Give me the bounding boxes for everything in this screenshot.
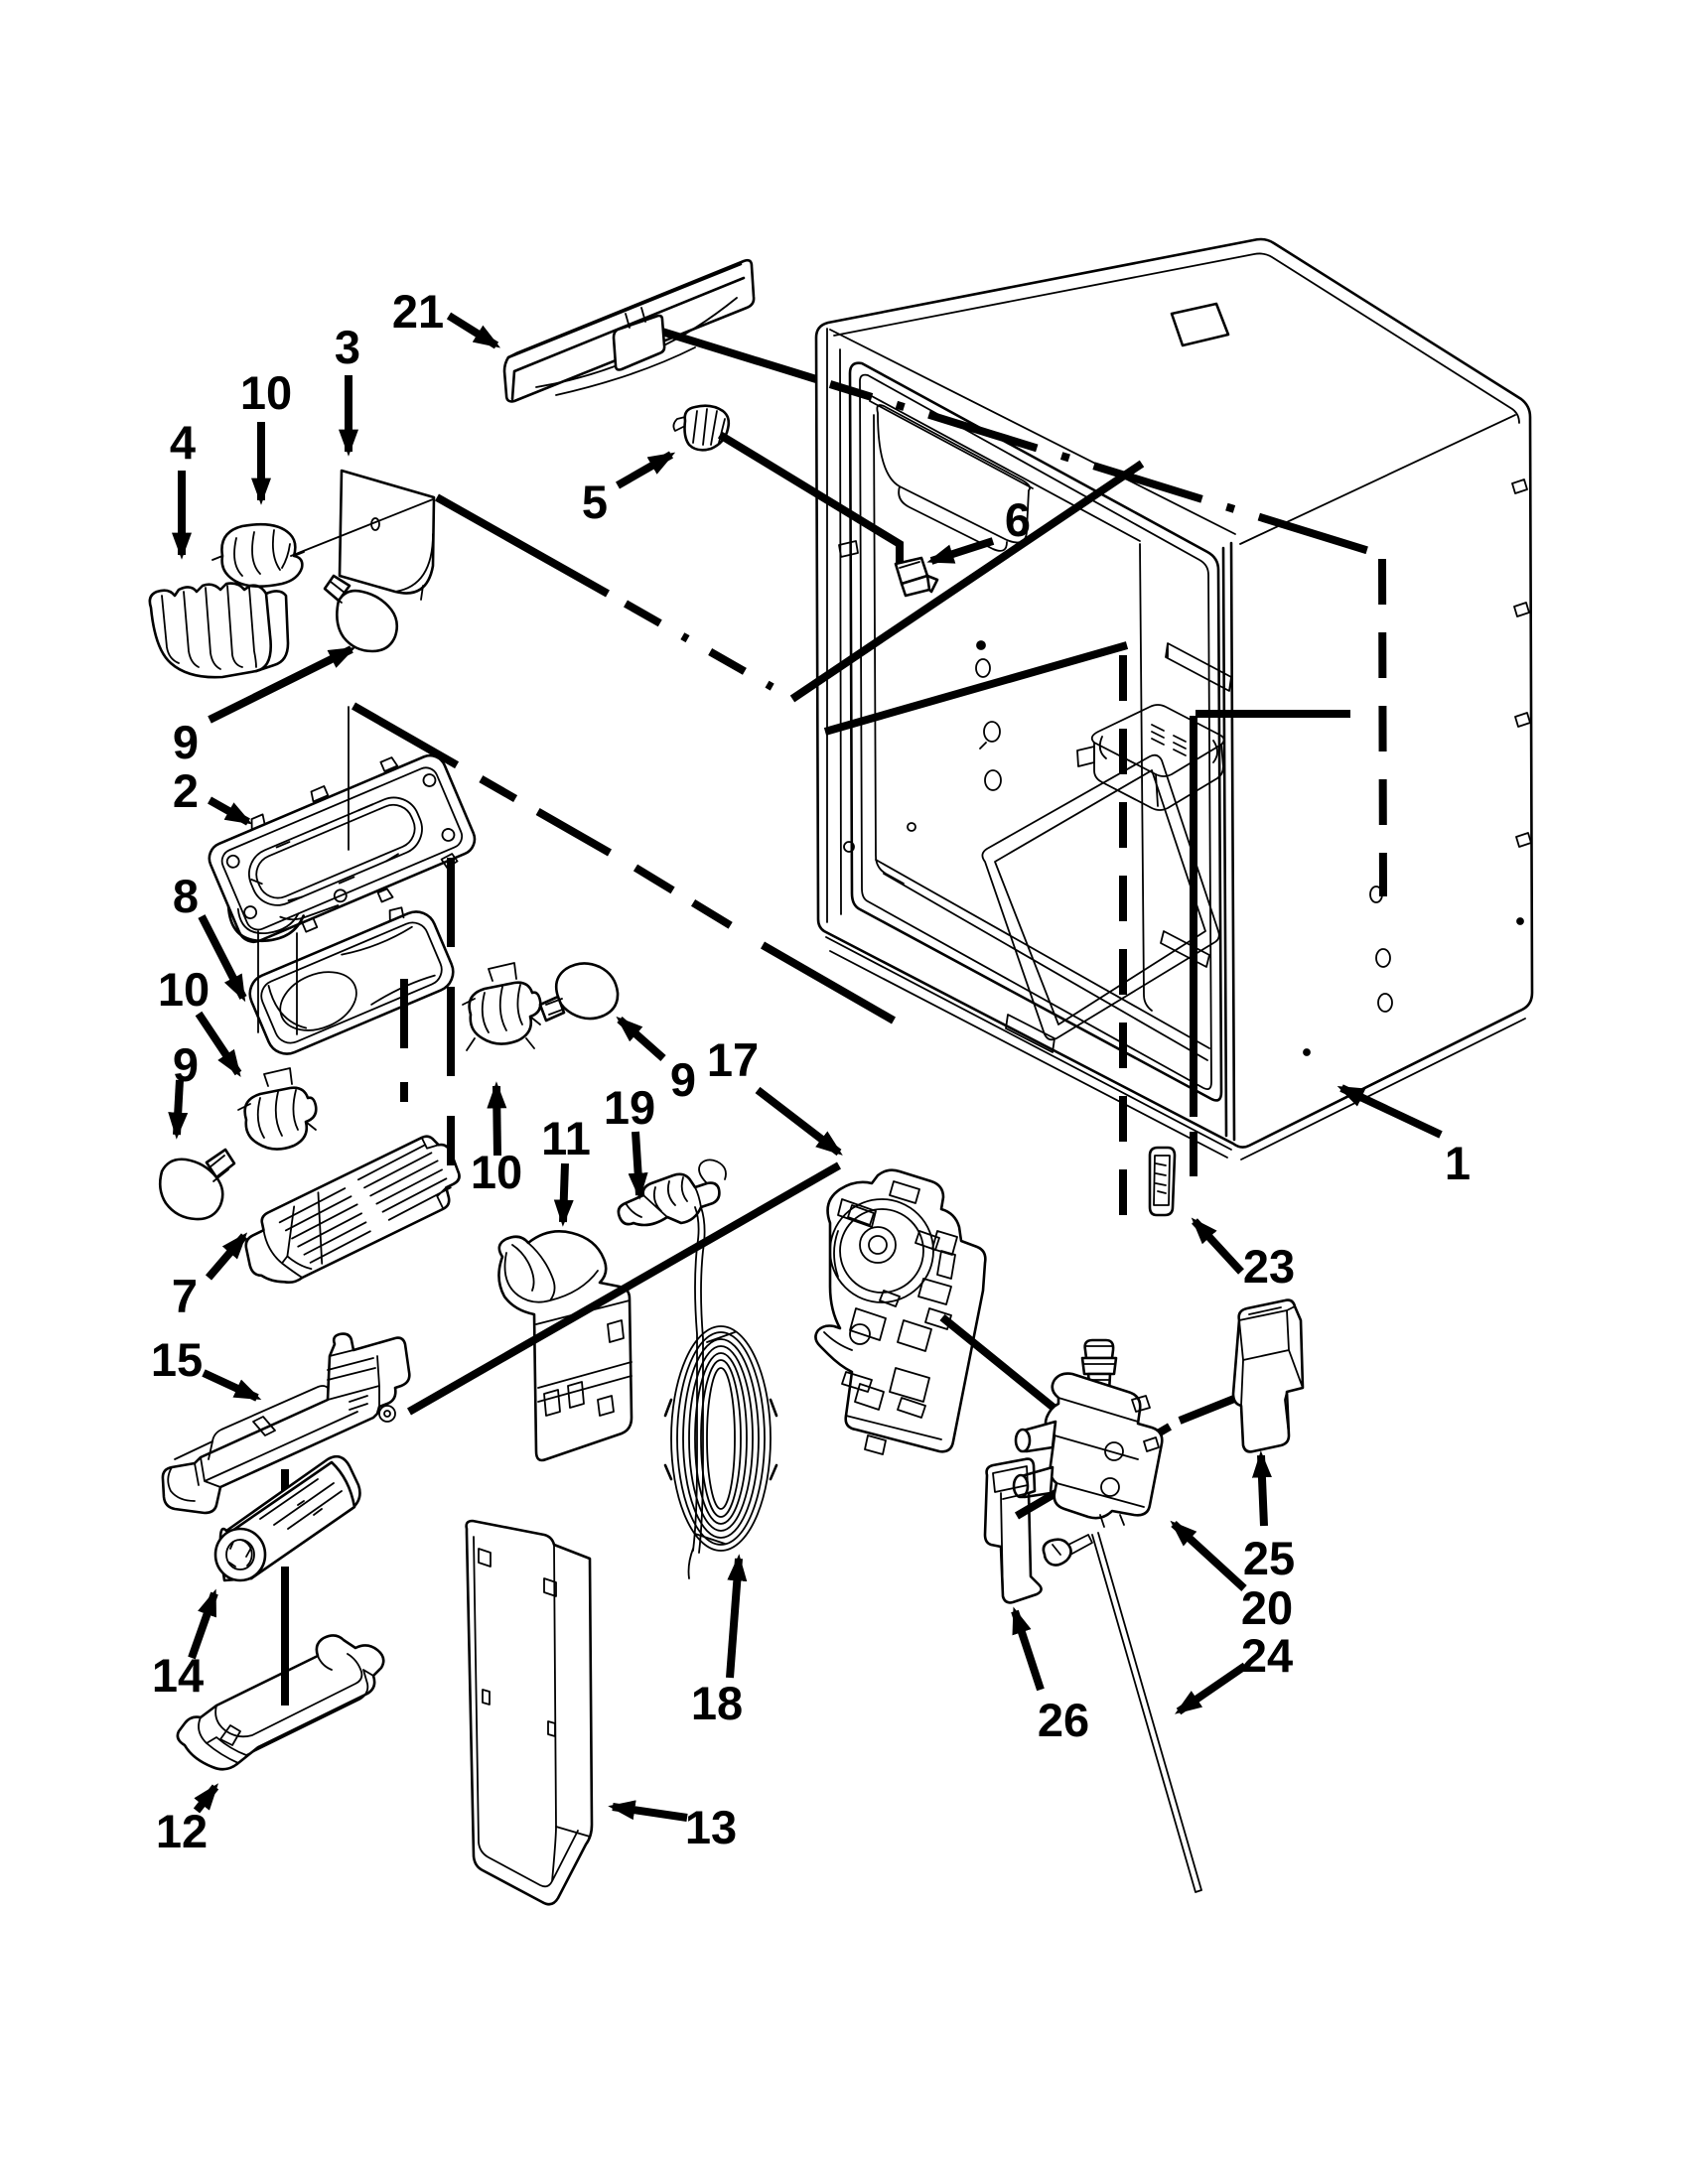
svg-text:23: 23 <box>1243 1240 1295 1293</box>
svg-text:20: 20 <box>1241 1581 1293 1634</box>
svg-text:7: 7 <box>172 1270 198 1322</box>
svg-text:9: 9 <box>173 716 199 768</box>
svg-text:24: 24 <box>1241 1629 1293 1682</box>
svg-text:25: 25 <box>1243 1532 1295 1584</box>
svg-text:2: 2 <box>173 764 199 817</box>
svg-text:8: 8 <box>173 870 199 922</box>
svg-text:5: 5 <box>582 476 608 528</box>
svg-text:17: 17 <box>707 1033 759 1086</box>
svg-text:15: 15 <box>151 1333 203 1386</box>
svg-text:3: 3 <box>335 321 360 373</box>
svg-text:1: 1 <box>1445 1137 1471 1189</box>
svg-text:9: 9 <box>670 1053 696 1106</box>
svg-text:21: 21 <box>392 285 444 338</box>
svg-text:11: 11 <box>541 1112 591 1164</box>
svg-text:19: 19 <box>604 1081 655 1134</box>
svg-text:10: 10 <box>158 963 210 1016</box>
svg-text:26: 26 <box>1038 1694 1089 1746</box>
svg-text:18: 18 <box>691 1677 743 1729</box>
svg-text:10: 10 <box>240 366 292 419</box>
svg-text:13: 13 <box>685 1801 737 1853</box>
svg-text:4: 4 <box>170 416 196 469</box>
